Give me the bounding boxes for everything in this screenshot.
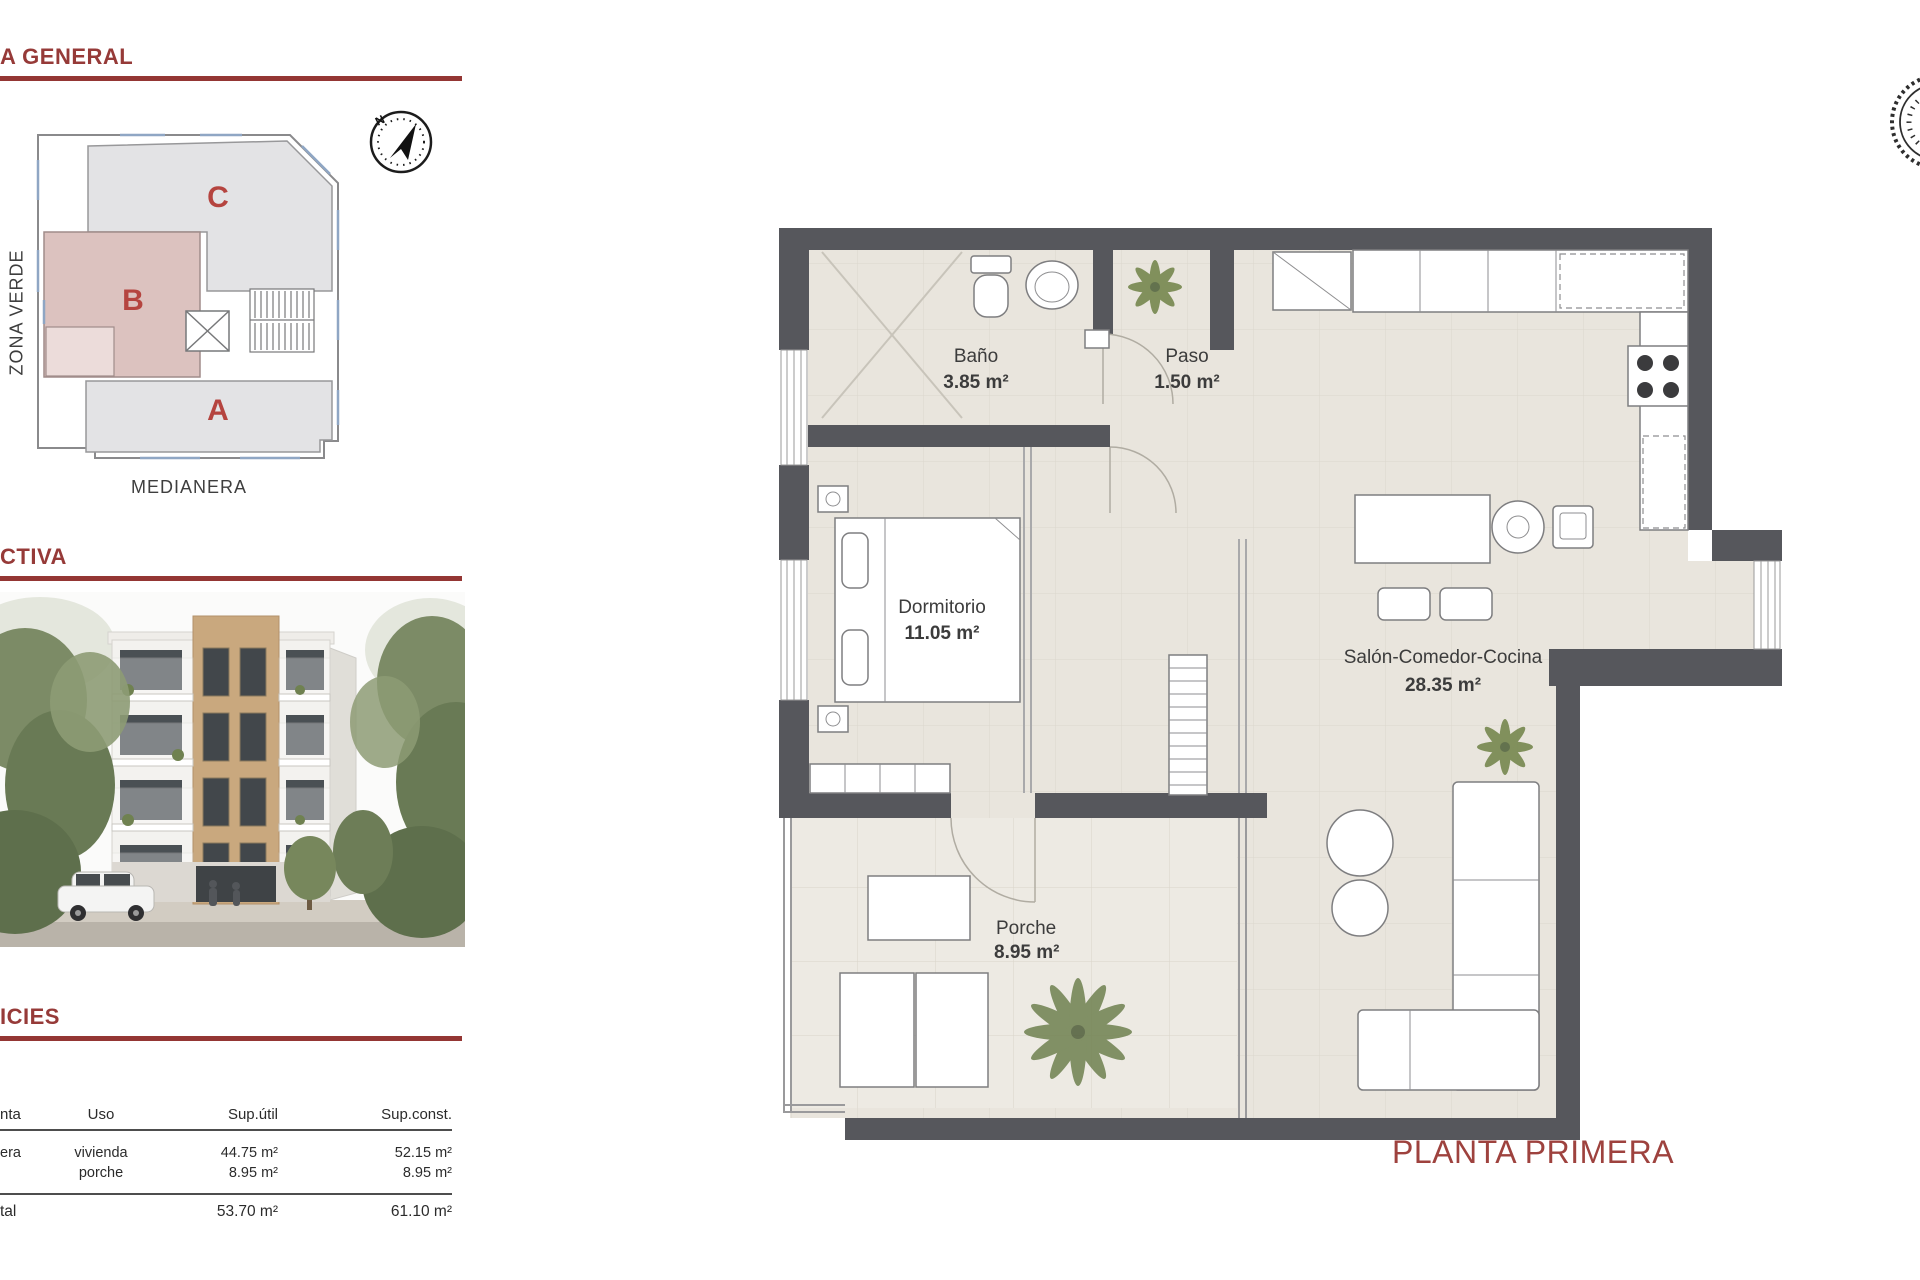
table-row: era vivienda 44.75 m² 52.15 m² — [0, 1143, 452, 1163]
logo-stamp-icon — [1874, 66, 1920, 178]
site-plan-heading: A GENERAL — [0, 44, 133, 70]
table-row: porche 8.95 m² 8.95 m² — [0, 1163, 452, 1183]
window-living — [1754, 561, 1780, 649]
unit-b-label: B — [122, 284, 144, 317]
divider-line — [0, 576, 462, 581]
divider-line — [0, 1036, 462, 1041]
table-total-row: tal 53.70 m² 61.10 m² — [0, 1193, 452, 1221]
cell-sup-util: 44.75 m² — [176, 1143, 278, 1163]
sink-icon — [1553, 506, 1593, 548]
elevator-shaft — [186, 311, 229, 351]
medianera-label: MEDIANERA — [131, 477, 247, 498]
surfaces-heading: ICIES — [0, 1004, 60, 1030]
round-table-icon — [1327, 810, 1393, 876]
round-table-icon — [1332, 880, 1388, 936]
cell-uso: vivienda — [26, 1143, 176, 1163]
shelf-icon — [1085, 330, 1109, 348]
wardrobe — [810, 764, 950, 793]
bench-icon — [916, 973, 988, 1087]
cell-sup-const: 8.95 m² — [278, 1163, 452, 1183]
nightstand-icon — [818, 486, 848, 512]
window-bathroom — [781, 350, 807, 465]
plant-icon — [1128, 260, 1182, 314]
surfaces-table-body: era vivienda 44.75 m² 52.15 m² porche 8.… — [0, 1131, 452, 1183]
chair-icon — [1440, 588, 1492, 620]
cell-total-label: tal — [0, 1203, 26, 1221]
zona-verde-label: ZONA VERDE — [7, 247, 28, 379]
room-area-salon: 28.35 m² — [1405, 675, 1481, 696]
cell-uso: porche — [26, 1163, 176, 1183]
chair-icon — [1378, 588, 1430, 620]
north-compass-icon: N — [371, 112, 431, 172]
room-area-paso: 1.50 m² — [1154, 372, 1219, 393]
room-label-dormitorio: Dormitorio — [898, 597, 986, 618]
stairwell — [250, 289, 314, 352]
divider-line — [0, 76, 462, 81]
room-area-dormitorio: 11.05 m² — [905, 623, 980, 644]
sofa-icon — [1358, 1010, 1539, 1090]
bench-icon — [840, 973, 914, 1087]
room-area-porche: 8.95 m² — [994, 942, 1059, 963]
room-label-paso: Paso — [1165, 346, 1208, 367]
cell-sup-util: 8.95 m² — [176, 1163, 278, 1183]
perspective-heading: CTIVA — [0, 544, 67, 570]
cell-total-sup-const: 61.10 m² — [278, 1203, 452, 1221]
site-key-plan: C B A N — [0, 95, 470, 505]
nightstand-icon — [818, 706, 848, 732]
apartment-floor-plan: Baño 3.85 m² Paso 1.50 m² Dormitorio 11.… — [770, 212, 1830, 1160]
surfaces-table-header: nta Uso Sup.útil Sup.const. — [0, 1106, 452, 1131]
cell-sup-const: 52.15 m² — [278, 1143, 452, 1163]
room-label-bano: Baño — [954, 346, 998, 367]
building-render — [0, 592, 465, 947]
floor-plan-title: PLANTA PRIMERA — [1392, 1134, 1674, 1171]
kitchen-counter — [1353, 250, 1688, 312]
table-icon — [868, 876, 970, 940]
kitchen-island — [1355, 495, 1490, 563]
sliding-door-pocket — [1169, 655, 1207, 795]
col-planta: nta — [0, 1106, 26, 1123]
stove-icon — [1628, 346, 1688, 406]
room-label-porche: Porche — [996, 918, 1056, 939]
room-label-salon: Salón-Comedor-Cocina — [1344, 647, 1543, 668]
unit-b-small-room — [46, 327, 114, 376]
toilet-icon — [971, 256, 1011, 273]
round-sink-icon — [1492, 501, 1544, 553]
col-sup-const: Sup.const. — [278, 1106, 452, 1123]
brochure-page: A GENERAL — [0, 0, 1920, 1280]
cell-total-sup-util: 53.70 m² — [176, 1203, 278, 1221]
window-bedroom — [781, 560, 807, 700]
unit-a-label: A — [207, 394, 229, 427]
col-sup-util: Sup.útil — [176, 1106, 278, 1123]
room-area-bano: 3.85 m² — [943, 372, 1008, 393]
plant-icon — [1477, 719, 1533, 775]
unit-c-label: C — [207, 181, 229, 214]
cell-planta: era — [0, 1143, 26, 1163]
surfaces-table: nta Uso Sup.útil Sup.const. era vivienda… — [0, 1106, 452, 1221]
col-uso: Uso — [26, 1106, 176, 1123]
